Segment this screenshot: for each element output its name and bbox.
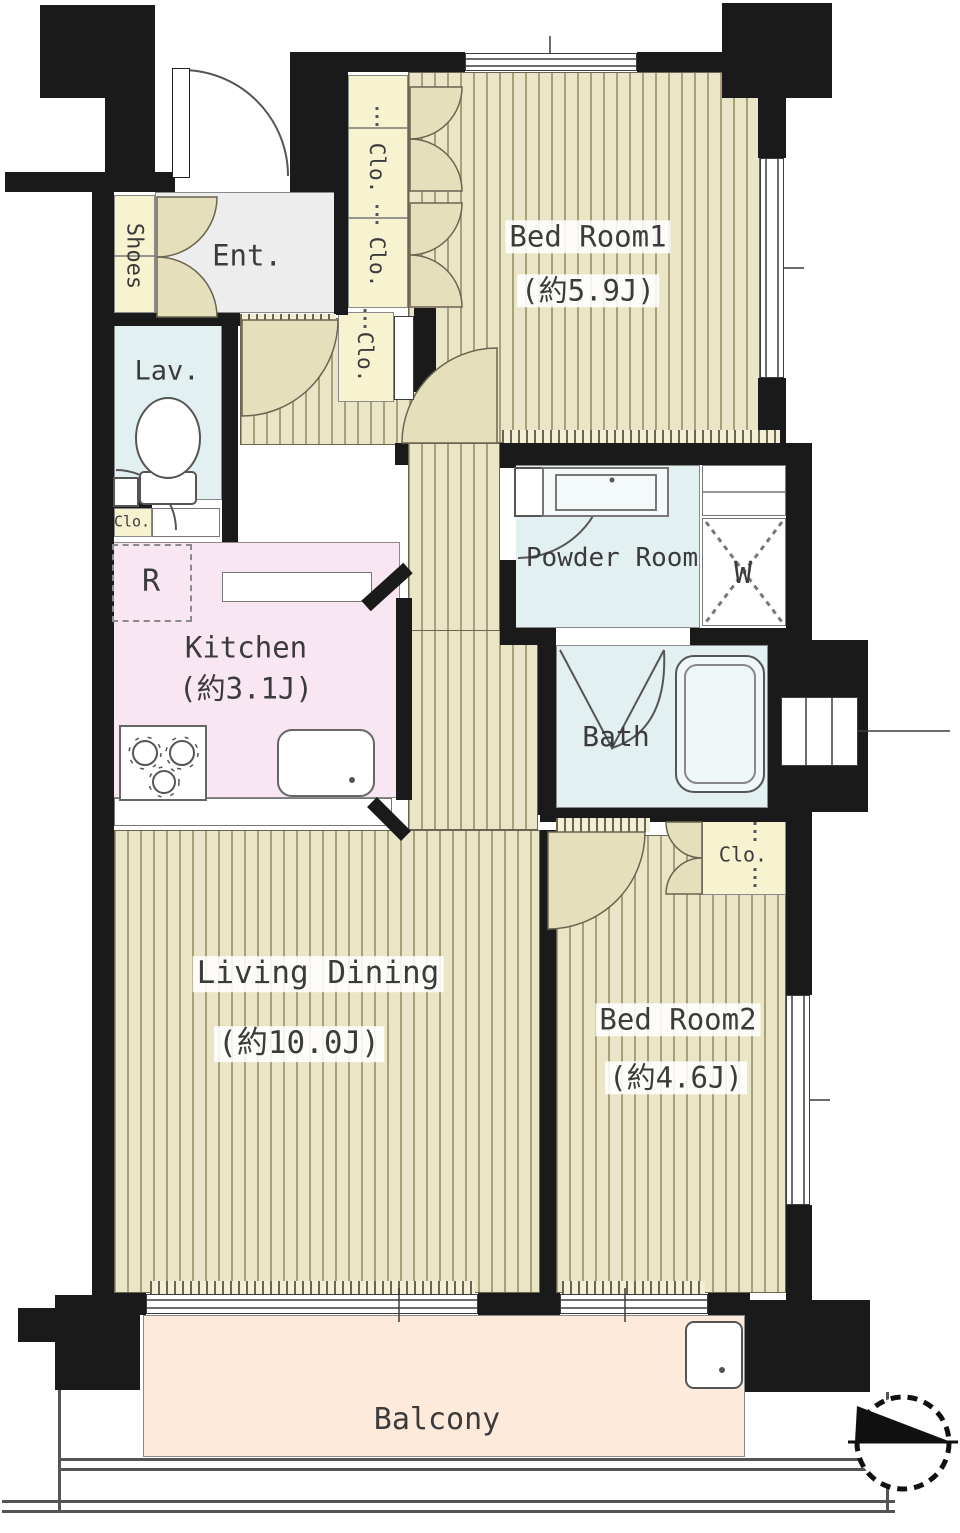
- bed-room2-label: Bed Room2: [595, 1003, 760, 1036]
- angled-walls: [366, 568, 408, 836]
- powder-cabinet: [515, 468, 543, 516]
- closet-shelf-dots: [376, 205, 379, 227]
- stove: [120, 726, 206, 800]
- bed-room1-area: (約5.9J): [517, 274, 659, 307]
- refrigerator-label: R: [138, 565, 164, 600]
- closet-label: Clo.: [715, 844, 771, 867]
- door-swing-ent-hall: [242, 320, 338, 416]
- kitchen-area: (約3.1J): [175, 672, 317, 705]
- closet-label: Clo.: [353, 328, 377, 387]
- powder-room-label: Powder Room: [522, 544, 702, 574]
- shoes-label: Shoes: [121, 219, 146, 293]
- closet1-fan: [410, 87, 462, 139]
- washer-label: W: [730, 557, 756, 592]
- closet-shelf-dots: [364, 309, 367, 331]
- kitchen-faucet: [349, 777, 355, 783]
- wall-diagonal: [372, 802, 406, 836]
- closet1-fan: [410, 139, 462, 191]
- entry-door-leaf: [172, 68, 190, 178]
- closet-shelf-dots: [754, 822, 757, 844]
- lavatory-shelf: [114, 478, 138, 506]
- balcony-label: Balcony: [370, 1403, 504, 1438]
- bed-room1-label: Bed Room1: [505, 220, 670, 253]
- balcony-slop-sink: [686, 1322, 742, 1388]
- bathtub: [676, 656, 764, 792]
- balcony-sink-drain: [719, 1367, 725, 1373]
- door-swing-bedroom2: [548, 832, 645, 929]
- toilet-bowl: [136, 398, 200, 478]
- entrance-label: Ent.: [208, 239, 286, 272]
- closet-hallway-door: [394, 316, 414, 400]
- bed-room2-area: (約4.6J): [605, 1061, 747, 1094]
- closet-label: Clo.: [365, 233, 389, 292]
- closet2-fan: [666, 858, 702, 894]
- lavatory-label: Lav.: [130, 355, 203, 386]
- closet-label: Clo.: [365, 139, 389, 198]
- wall-diagonal: [366, 568, 408, 606]
- closet-shelf-dots: [376, 107, 379, 129]
- bath-label: Bath: [578, 721, 653, 753]
- closet1-fan: [410, 255, 462, 307]
- closet1-fan: [410, 203, 462, 255]
- kitchen-sink: [278, 730, 374, 796]
- closet-shelf-dots: [754, 868, 757, 890]
- door-swing-bedroom1: [402, 348, 497, 443]
- closet-label: Clo.: [114, 513, 150, 530]
- kitchen-label: Kitchen: [181, 631, 311, 664]
- entry-door-arc: [182, 70, 288, 176]
- vanity-faucet: [610, 478, 615, 483]
- floor-plan: Bed Room1 (約5.9J) Bed Room2 (約4.6J) Livi…: [0, 0, 960, 1533]
- north-arrow-icon: [848, 1397, 958, 1489]
- living-dining-area: (約10.0J): [214, 1026, 384, 1062]
- closet2-fan: [666, 822, 702, 858]
- living-dining-label: Living Dining: [193, 956, 444, 992]
